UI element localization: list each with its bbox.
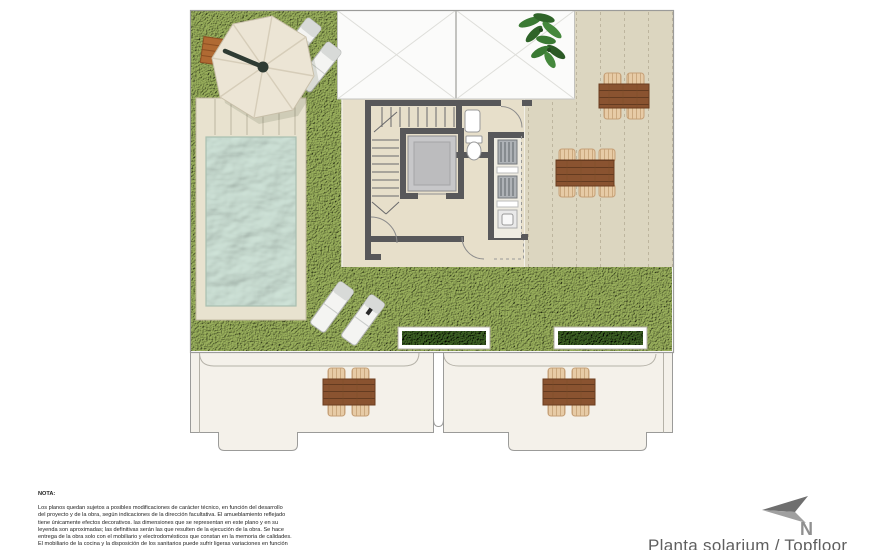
lower-terrace-left <box>191 353 434 451</box>
north-arrow-blade-dark <box>762 496 808 512</box>
dining-set-terrace-large <box>556 149 615 197</box>
dining-table-6-seats <box>556 160 614 186</box>
parasol-hub <box>258 62 269 73</box>
note-line: del proyecto y de la obra, según indicac… <box>38 512 288 519</box>
kitchen-shelf <box>497 167 518 173</box>
sink-basin <box>502 214 513 225</box>
kitchen-shelf <box>497 201 518 207</box>
terrace-divider <box>434 353 444 427</box>
note-heading: NOTA: <box>38 491 288 498</box>
note-line: El mobiliario de la cocina y la disposic… <box>38 541 288 548</box>
toilet-bowl <box>467 142 481 160</box>
floor-plan-sheet: N NOTA: Los planos quedan sujetos a posi… <box>0 0 869 550</box>
note: NOTA: Los planos quedan sujetos a posibl… <box>38 491 288 548</box>
elevator <box>408 136 456 194</box>
note-line: tiene únicamente efectos decorativos. la… <box>38 520 288 527</box>
dining-table-4-seats <box>323 379 375 405</box>
pool-deck <box>196 98 306 320</box>
note-line: Los planos quedan sujetos a posibles mod… <box>38 505 288 512</box>
dining-table-4-seats <box>599 84 649 108</box>
north-arrow: N <box>762 496 813 539</box>
dining-table-4-seats <box>543 379 595 405</box>
floor-plan-drawing: N <box>0 0 869 550</box>
plan-title: Planta solarium / Topfloor <box>648 536 847 550</box>
planter-hedge <box>402 331 486 345</box>
lower-terraces <box>191 353 673 451</box>
swimming-pool <box>206 137 296 306</box>
planter-hedge <box>558 331 643 345</box>
note-line: entrega de la obra solo con el mobiliari… <box>38 534 288 541</box>
washbasin <box>465 110 480 132</box>
note-line: leyenda son aproximadas; las definitivas… <box>38 527 288 534</box>
